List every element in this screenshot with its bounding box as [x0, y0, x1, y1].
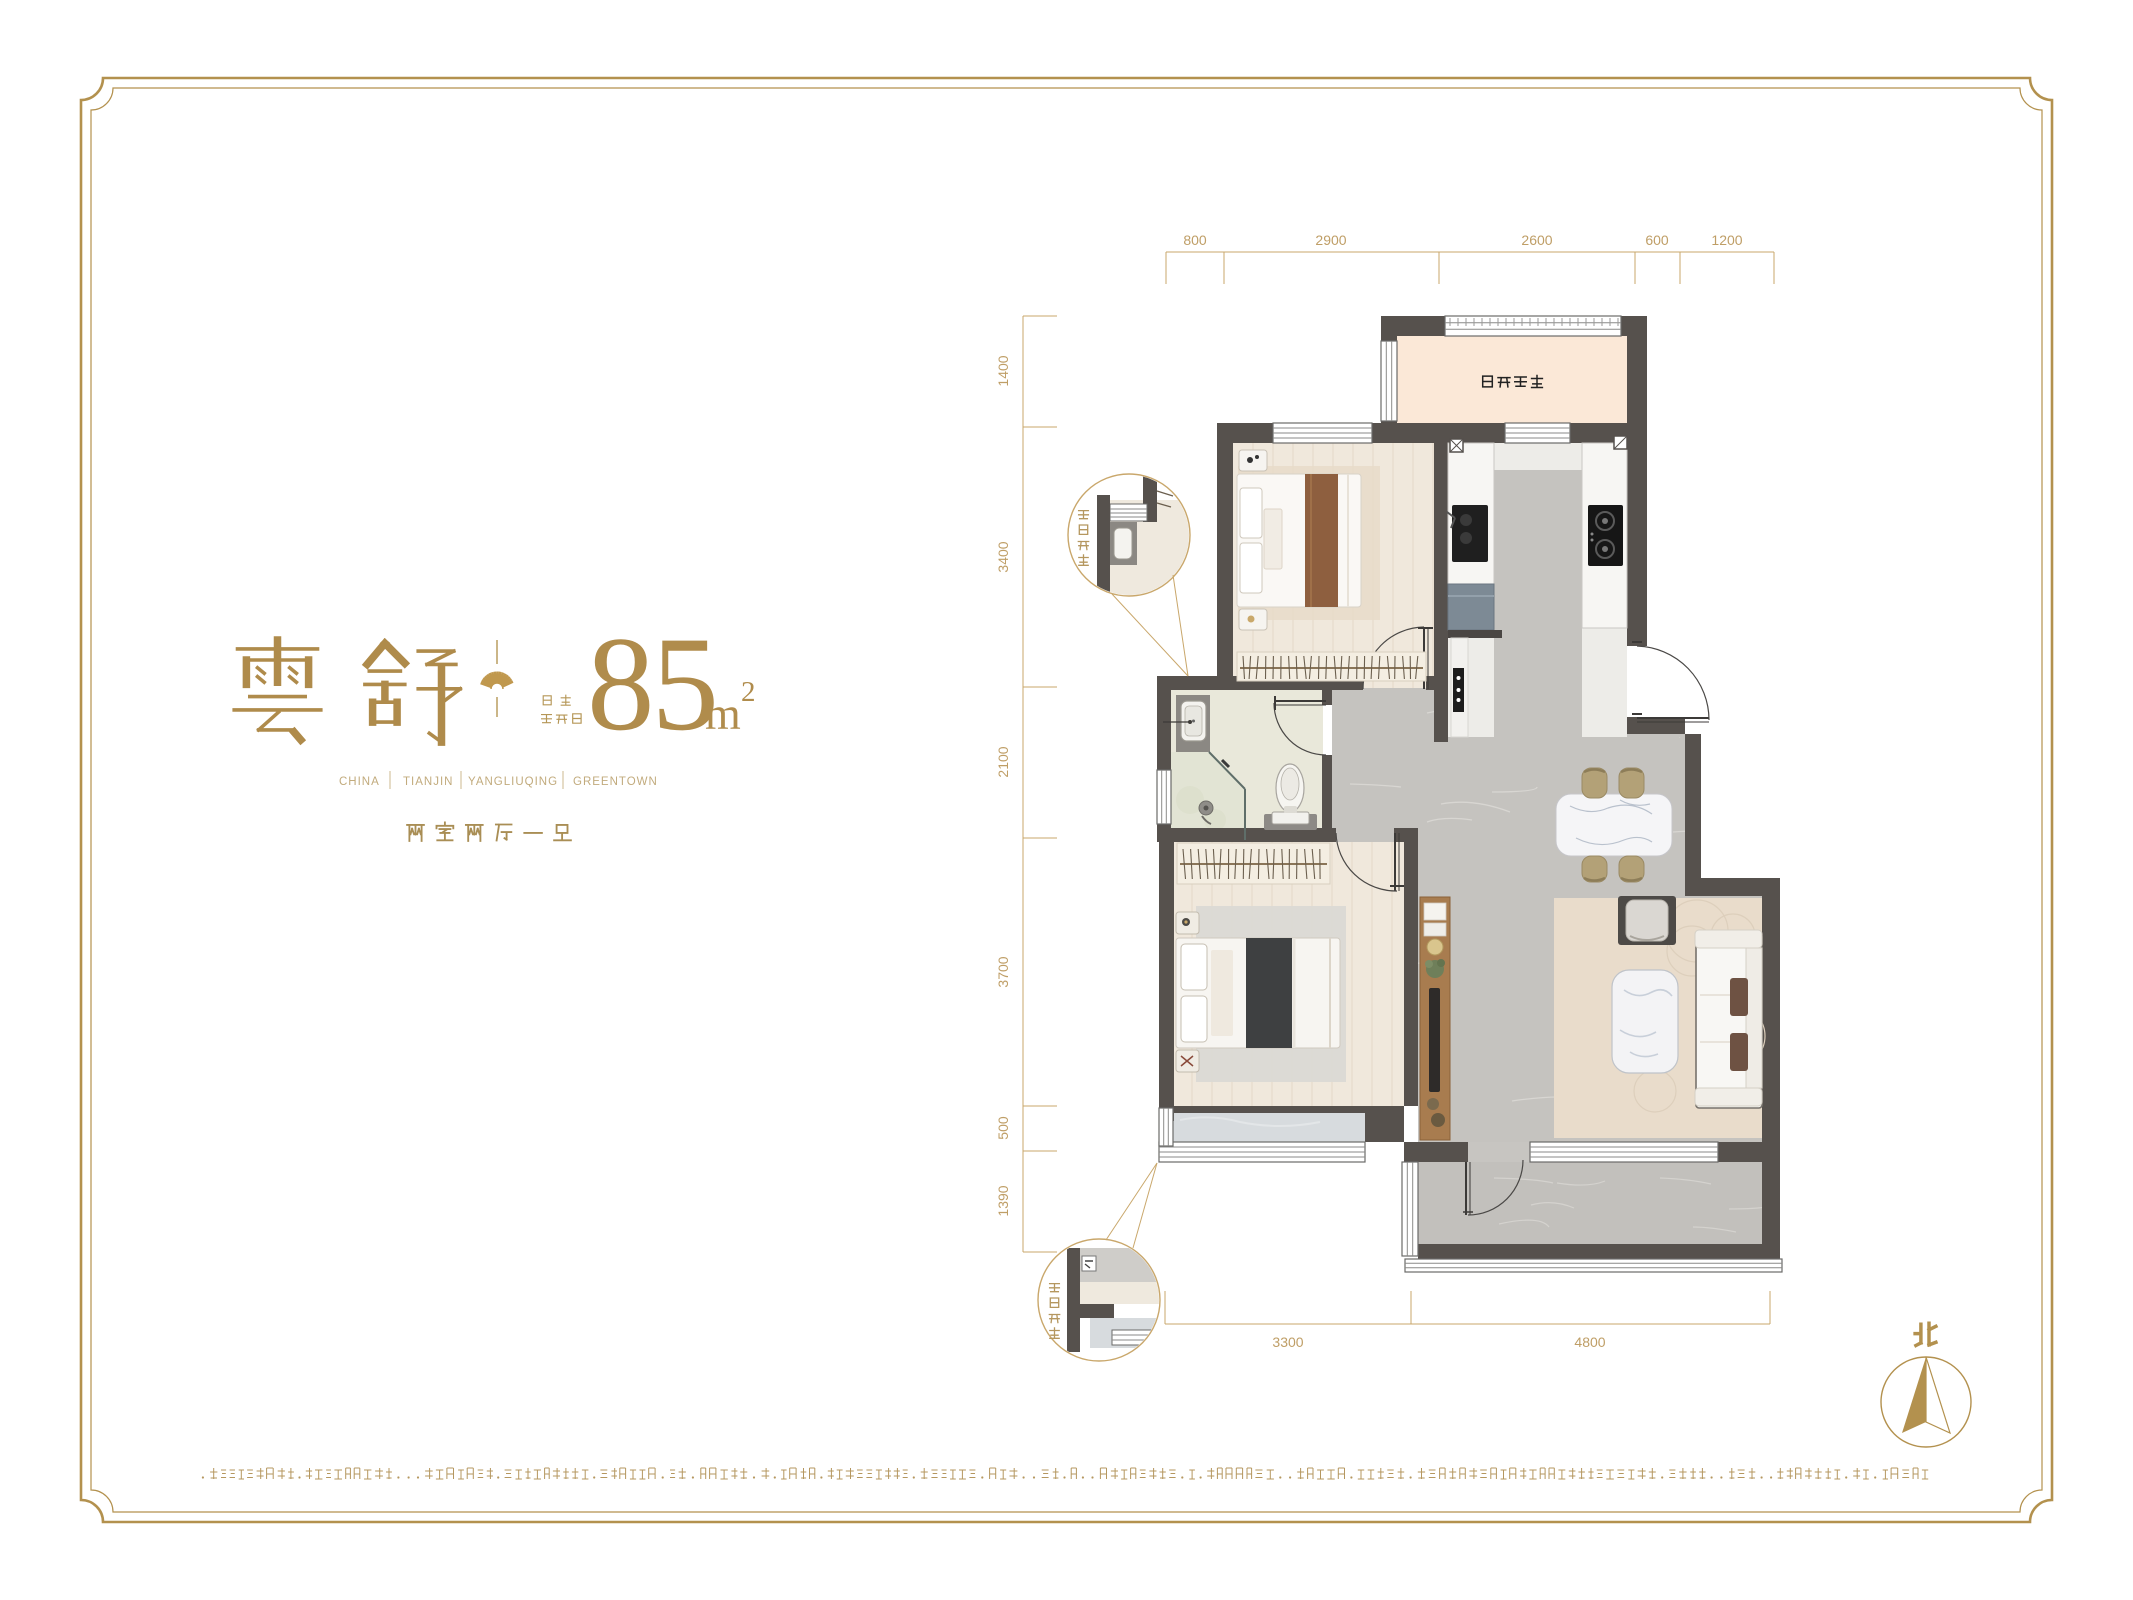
svg-text:2100: 2100: [995, 746, 1011, 777]
svg-text:85: 85: [587, 610, 716, 759]
svg-text:CHINA: CHINA: [339, 776, 380, 788]
svg-text:3300: 3300: [1272, 1334, 1303, 1350]
svg-text:3400: 3400: [995, 541, 1011, 572]
svg-text:m: m: [705, 688, 741, 739]
svg-text:4800: 4800: [1574, 1334, 1605, 1350]
svg-text:800: 800: [1183, 232, 1207, 248]
svg-text:2900: 2900: [1315, 232, 1346, 248]
svg-text:1200: 1200: [1711, 232, 1742, 248]
svg-text:600: 600: [1645, 232, 1669, 248]
svg-text:2600: 2600: [1521, 232, 1552, 248]
svg-text:500: 500: [995, 1116, 1011, 1140]
svg-text:YANGLIUQING: YANGLIUQING: [468, 776, 558, 788]
svg-text:GREENTOWN: GREENTOWN: [573, 776, 658, 788]
svg-text:1400: 1400: [995, 355, 1011, 386]
svg-text:TIANJIN: TIANJIN: [403, 776, 453, 788]
svg-text:2: 2: [741, 676, 756, 708]
svg-text:3700: 3700: [995, 956, 1011, 987]
svg-text:1390: 1390: [995, 1185, 1011, 1216]
